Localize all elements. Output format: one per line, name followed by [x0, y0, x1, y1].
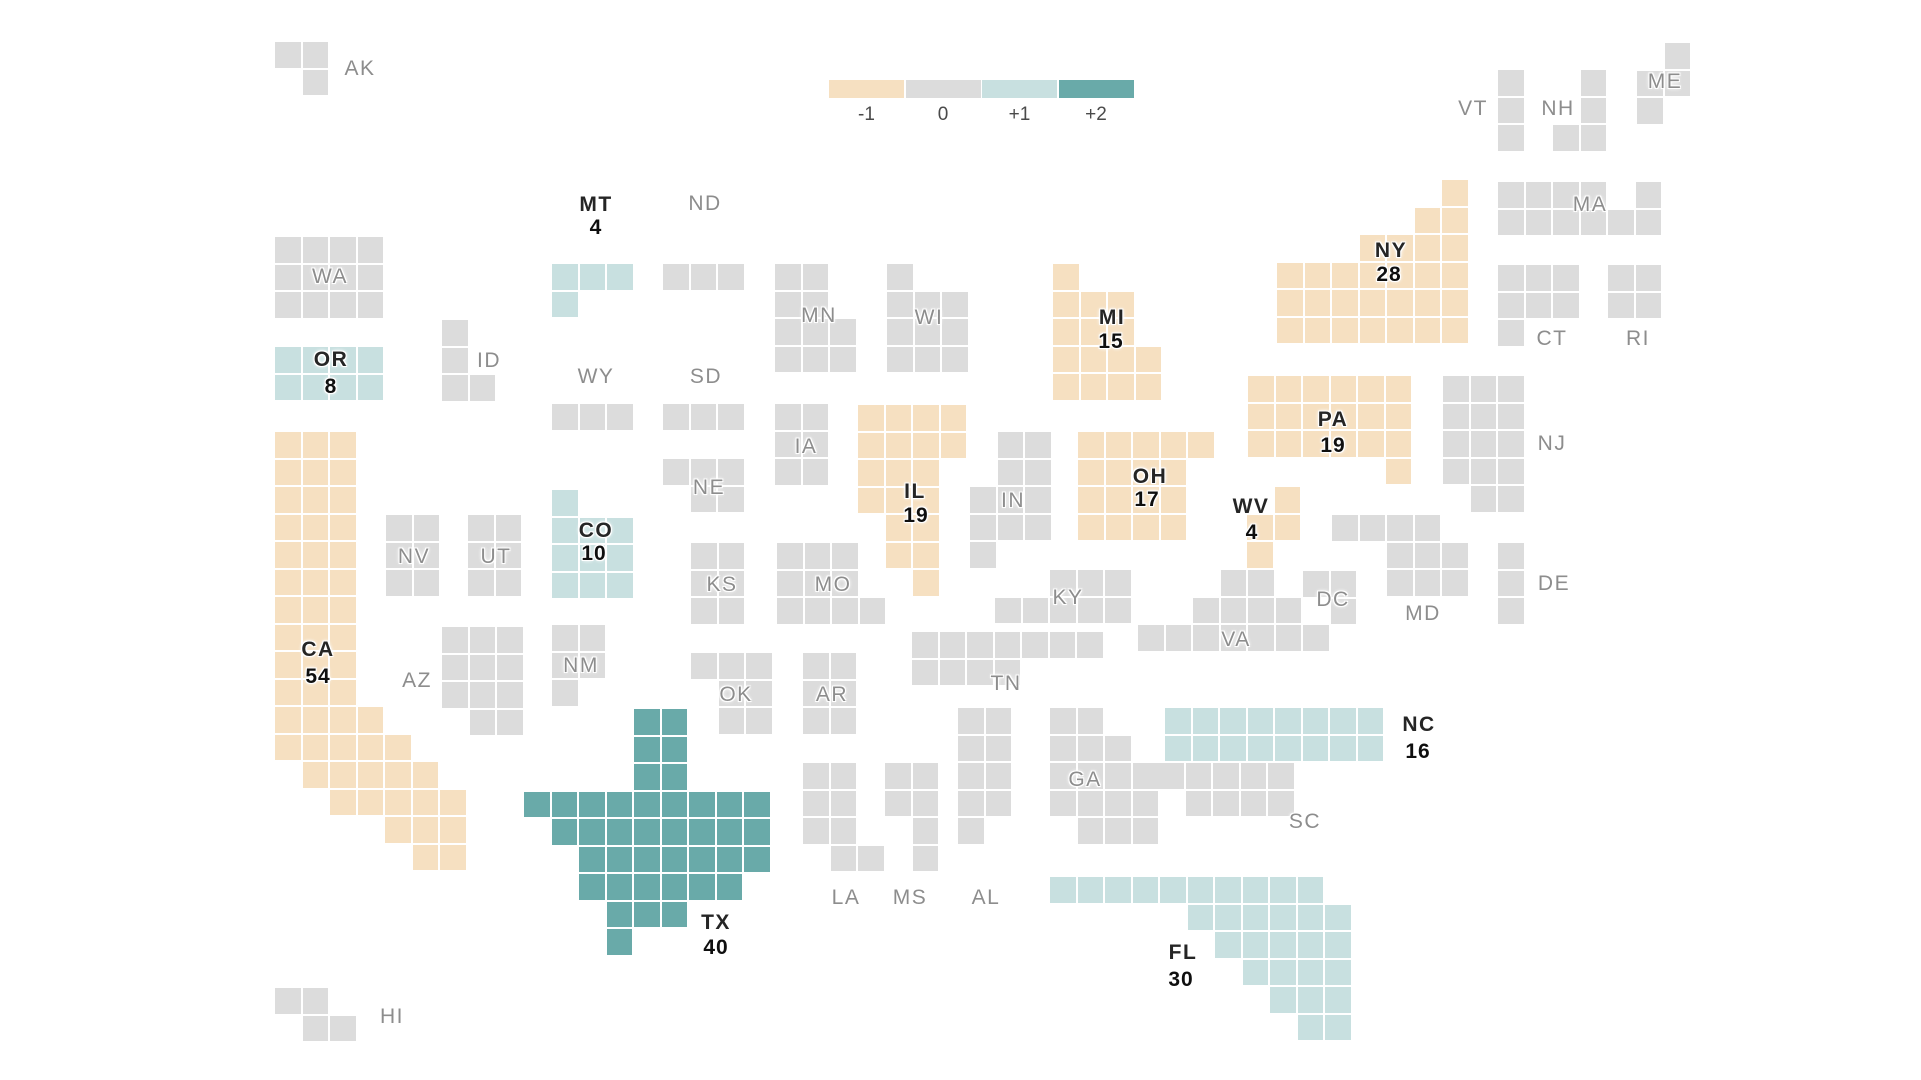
- tile-VA: [1248, 570, 1274, 596]
- tile-TX: [634, 847, 660, 873]
- label-NH: NH: [1541, 97, 1574, 121]
- tile-FL: [1325, 905, 1351, 931]
- label-MO: MO: [815, 573, 852, 597]
- tile-CT: [1553, 293, 1579, 319]
- legend-label--1: -1: [858, 104, 875, 126]
- tile-CA: [275, 707, 301, 733]
- tile-NE: [663, 459, 689, 485]
- tile-CT: [1526, 293, 1552, 319]
- tile-VA: [1221, 570, 1247, 596]
- tile-TX: [662, 847, 688, 873]
- tile-PA: [1386, 376, 1412, 402]
- tile-TX: [634, 764, 660, 790]
- tile-NY: [1360, 318, 1386, 344]
- tile-CA: [275, 432, 301, 458]
- tile-SC: [1213, 791, 1239, 817]
- tile-WI: [887, 264, 913, 290]
- tile-GA: [1105, 791, 1131, 817]
- tile-MI: [1081, 374, 1107, 400]
- tile-TX: [524, 792, 550, 818]
- tile-ND: [718, 264, 744, 290]
- tile-NC: [1330, 708, 1356, 734]
- tile-CA: [358, 735, 384, 761]
- tile-CA: [358, 790, 384, 816]
- tile-TX: [607, 847, 633, 873]
- tile-HI: [303, 988, 329, 1014]
- tile-CT: [1498, 293, 1524, 319]
- tile-MA: [1636, 210, 1662, 236]
- tile-HI: [275, 988, 301, 1014]
- legend-label-+1: +1: [1009, 104, 1031, 126]
- tile-CA: [275, 652, 301, 678]
- tile-MN: [775, 347, 801, 373]
- tile-OH: [1133, 432, 1159, 458]
- tile-KS: [691, 598, 717, 624]
- tile-FL: [1215, 932, 1241, 958]
- tile-DE: [1498, 571, 1524, 597]
- tile-SC: [1186, 791, 1212, 817]
- tile-TX: [662, 819, 688, 845]
- tile-ID: [442, 375, 468, 401]
- tile-NV: [414, 515, 440, 541]
- tile-MT: [580, 264, 606, 290]
- tile-TX: [634, 819, 660, 845]
- tile-OH: [1078, 515, 1104, 541]
- tile-IL: [941, 405, 967, 431]
- tile-IL: [886, 543, 912, 569]
- tile-CA: [330, 707, 356, 733]
- tile-VA: [1276, 598, 1302, 624]
- tile-WA: [275, 237, 301, 263]
- tile-WI: [887, 347, 913, 373]
- tile-WA: [358, 237, 384, 263]
- tile-TX: [744, 792, 770, 818]
- tile-CO: [580, 573, 606, 599]
- tile-MN: [830, 347, 856, 373]
- tile-MA: [1526, 182, 1552, 208]
- tile-GA: [1050, 791, 1076, 817]
- tile-FL: [1270, 932, 1296, 958]
- tile-NJ: [1443, 404, 1469, 430]
- tile-TX: [717, 874, 743, 900]
- tile-NC: [1248, 736, 1274, 762]
- label-CA: CA: [301, 638, 334, 662]
- label-AZ: AZ: [402, 669, 432, 693]
- tile-AZ: [470, 710, 496, 736]
- tile-VA: [1193, 625, 1219, 651]
- tile-NJ: [1443, 459, 1469, 485]
- tile-OH: [1161, 487, 1187, 513]
- tile-TN: [967, 632, 993, 658]
- tile-PA: [1331, 376, 1357, 402]
- tile-MD: [1442, 543, 1468, 569]
- value-WV: 4: [1246, 521, 1259, 545]
- tile-GA: [1105, 763, 1131, 789]
- tile-OK: [719, 708, 745, 734]
- tile-VA: [1248, 598, 1274, 624]
- tile-MS: [913, 763, 939, 789]
- tile-TN: [940, 632, 966, 658]
- tile-MN: [803, 347, 829, 373]
- tile-AL: [986, 763, 1012, 789]
- tile-NC: [1193, 736, 1219, 762]
- label-MT: MT: [579, 193, 612, 217]
- tile-VA: [1276, 625, 1302, 651]
- tile-LA: [858, 846, 884, 872]
- tile-CA: [330, 460, 356, 486]
- tile-KS: [719, 543, 745, 569]
- tile-SC: [1213, 763, 1239, 789]
- tile-LA: [803, 791, 829, 817]
- tile-SC: [1241, 763, 1267, 789]
- tile-OR: [275, 347, 301, 373]
- tile-OH: [1106, 515, 1132, 541]
- tile-MD: [1387, 515, 1413, 541]
- tile-PA: [1276, 404, 1302, 430]
- tile-IN: [970, 487, 996, 513]
- tile-FL: [1243, 932, 1269, 958]
- value-NY: 28: [1376, 263, 1401, 287]
- legend-label-0: 0: [938, 104, 949, 126]
- tile-KY: [1023, 598, 1049, 624]
- tile-NM: [552, 625, 578, 651]
- tile-IL: [886, 433, 912, 459]
- tile-VA: [1193, 598, 1219, 624]
- tile-CA: [275, 460, 301, 486]
- tile-PA: [1276, 376, 1302, 402]
- tile-ID: [442, 348, 468, 374]
- tile-WA: [330, 237, 356, 263]
- tile-MS: [913, 791, 939, 817]
- tile-FL: [1325, 1015, 1351, 1041]
- tile-GA: [1133, 818, 1159, 844]
- tile-FL: [1215, 905, 1241, 931]
- tile-WA: [303, 292, 329, 318]
- tile-MS: [913, 846, 939, 872]
- label-VA: VA: [1221, 628, 1250, 652]
- tile-OH: [1188, 432, 1214, 458]
- tile-TX: [689, 874, 715, 900]
- tile-NY: [1415, 263, 1441, 289]
- tile-CT: [1498, 320, 1524, 346]
- tile-CA: [358, 707, 384, 733]
- label-NM: NM: [563, 654, 599, 678]
- tile-OH: [1106, 487, 1132, 513]
- tile-MA: [1526, 210, 1552, 236]
- tile-TX: [579, 819, 605, 845]
- tile-IN: [970, 542, 996, 568]
- tile-WA: [275, 292, 301, 318]
- tile-MI: [1053, 292, 1079, 318]
- tile-AZ: [470, 627, 496, 653]
- tile-CA: [303, 460, 329, 486]
- label-KY: KY: [1052, 586, 1083, 610]
- tile-NY: [1387, 318, 1413, 344]
- label-AK: AK: [344, 57, 375, 81]
- tile-GA: [1078, 708, 1104, 734]
- tile-IL: [858, 433, 884, 459]
- label-SD: SD: [690, 365, 722, 389]
- tile-TX: [689, 847, 715, 873]
- tile-MI: [1053, 319, 1079, 345]
- tile-RI: [1608, 265, 1634, 291]
- tile-TX: [662, 764, 688, 790]
- tile-CA: [330, 487, 356, 513]
- tile-IA: [803, 404, 829, 430]
- tile-LA: [831, 818, 857, 844]
- tile-CA: [330, 597, 356, 623]
- tile-FL: [1270, 905, 1296, 931]
- tile-CA: [303, 707, 329, 733]
- tile-MA: [1498, 182, 1524, 208]
- tile-TX: [662, 709, 688, 735]
- label-KS: KS: [706, 573, 737, 597]
- tile-VA: [1248, 625, 1274, 651]
- tile-CA: [275, 487, 301, 513]
- tile-CT: [1498, 265, 1524, 291]
- tile-AZ: [497, 710, 523, 736]
- tile-CA: [440, 845, 466, 871]
- tile-NY: [1360, 290, 1386, 316]
- tile-IL: [858, 488, 884, 514]
- tile-AL: [958, 736, 984, 762]
- tile-MN: [775, 292, 801, 318]
- label-SC: SC: [1289, 810, 1321, 834]
- tile-LA: [803, 763, 829, 789]
- label-AL: AL: [972, 886, 1001, 910]
- label-MN: MN: [801, 304, 837, 328]
- tile-FL: [1298, 987, 1324, 1013]
- value-CO: 10: [581, 542, 606, 566]
- tile-CA: [275, 597, 301, 623]
- tile-MI: [1053, 347, 1079, 373]
- tile-AZ: [497, 655, 523, 681]
- tile-AZ: [497, 627, 523, 653]
- tile-HI: [330, 1016, 356, 1042]
- tile-MO: [777, 543, 803, 569]
- tile-NJ: [1471, 431, 1497, 457]
- tile-NC: [1248, 708, 1274, 734]
- tile-PA: [1303, 376, 1329, 402]
- tile-SC: [1268, 763, 1294, 789]
- label-PA: PA: [1318, 408, 1349, 432]
- tile-CA: [385, 762, 411, 788]
- tile-NJ: [1443, 376, 1469, 402]
- tile-CA: [275, 680, 301, 706]
- label-CO: CO: [579, 519, 614, 543]
- tile-MT: [607, 264, 633, 290]
- tile-NM: [580, 625, 606, 651]
- tile-NC: [1165, 736, 1191, 762]
- tile-NC: [1275, 736, 1301, 762]
- tile-OK: [746, 708, 772, 734]
- tile-MA: [1498, 210, 1524, 236]
- tile-NY: [1277, 263, 1303, 289]
- label-NC: NC: [1402, 713, 1435, 737]
- tile-WV: [1275, 487, 1301, 513]
- tile-WI: [942, 319, 968, 345]
- label-UT: UT: [481, 545, 512, 569]
- tile-TX: [744, 819, 770, 845]
- tile-FL: [1215, 877, 1241, 903]
- tile-AZ: [497, 682, 523, 708]
- value-MI: 15: [1098, 330, 1123, 354]
- tile-TX: [607, 792, 633, 818]
- tile-OH: [1106, 432, 1132, 458]
- tile-GA: [1078, 791, 1104, 817]
- tile-MS: [885, 763, 911, 789]
- tile-IA: [775, 459, 801, 485]
- tile-WV: [1275, 515, 1301, 541]
- tile-NH: [1581, 98, 1607, 124]
- tile-PA: [1386, 404, 1412, 430]
- value-OR: 8: [325, 375, 338, 399]
- tile-WA: [303, 237, 329, 263]
- tile-TX: [689, 819, 715, 845]
- tile-NJ: [1498, 404, 1524, 430]
- tile-NV: [386, 515, 412, 541]
- tile-FL: [1270, 877, 1296, 903]
- tile-NY: [1277, 318, 1303, 344]
- tile-NC: [1220, 708, 1246, 734]
- label-LA: LA: [832, 886, 861, 910]
- tile-CA: [303, 762, 329, 788]
- tile-IN: [1025, 487, 1051, 513]
- tile-SD: [718, 404, 744, 430]
- tile-CO: [552, 573, 578, 599]
- label-TN: TN: [991, 672, 1022, 696]
- tile-CA: [440, 817, 466, 843]
- label-RI: RI: [1626, 327, 1650, 351]
- tile-GA: [1133, 791, 1159, 817]
- tile-TX: [552, 792, 578, 818]
- tile-WY: [580, 404, 606, 430]
- tile-NJ: [1471, 404, 1497, 430]
- label-MS: MS: [893, 886, 928, 910]
- tile-TX: [662, 792, 688, 818]
- tile-MO: [805, 598, 831, 624]
- label-WA: WA: [312, 265, 348, 289]
- label-WY: WY: [578, 365, 615, 389]
- label-NY: NY: [1375, 239, 1407, 263]
- tile-TX: [607, 929, 633, 955]
- tile-DE: [1498, 598, 1524, 624]
- tile-GA: [1078, 818, 1104, 844]
- tile-CA: [330, 542, 356, 568]
- tile-MD: [1387, 543, 1413, 569]
- tile-IN: [998, 515, 1024, 541]
- tile-NJ: [1471, 486, 1497, 512]
- tile-UT: [496, 570, 522, 596]
- tile-CA: [330, 680, 356, 706]
- tile-NC: [1303, 708, 1329, 734]
- tile-LA: [803, 818, 829, 844]
- tile-MI: [1108, 374, 1134, 400]
- tile-TX: [717, 819, 743, 845]
- tile-OK: [691, 653, 717, 679]
- value-TX: 40: [703, 936, 728, 960]
- tile-WI: [915, 347, 941, 373]
- tile-CT: [1526, 265, 1552, 291]
- tile-NM: [552, 680, 578, 706]
- tile-MA: [1608, 210, 1634, 236]
- tile-ME: [1637, 98, 1663, 124]
- tile-VA: [1138, 625, 1164, 651]
- tile-MO: [860, 598, 886, 624]
- tile-OH: [1133, 515, 1159, 541]
- tile-OH: [1106, 460, 1132, 486]
- tile-RI: [1636, 293, 1662, 319]
- tile-NC: [1330, 736, 1356, 762]
- tile-CA: [385, 735, 411, 761]
- tile-MS: [885, 791, 911, 817]
- tile-AK: [275, 42, 301, 68]
- tile-OH: [1161, 432, 1187, 458]
- tile-GA: [1133, 763, 1159, 789]
- tile-VA: [1221, 598, 1247, 624]
- tile-TN: [995, 632, 1021, 658]
- tile-IL: [913, 433, 939, 459]
- tile-IN: [970, 515, 996, 541]
- legend-swatch--1: [829, 80, 904, 98]
- tile-CA: [385, 817, 411, 843]
- tile-WA: [275, 265, 301, 291]
- tile-FL: [1078, 877, 1104, 903]
- tile-GA: [1050, 708, 1076, 734]
- tile-WV: [1247, 542, 1273, 568]
- tile-TX: [634, 874, 660, 900]
- tile-AR: [803, 708, 829, 734]
- tile-OR: [275, 375, 301, 401]
- tile-IA: [775, 404, 801, 430]
- tile-NV: [414, 570, 440, 596]
- tile-MD: [1442, 570, 1468, 596]
- tile-FL: [1298, 1015, 1324, 1041]
- tile-IL: [941, 433, 967, 459]
- tile-TX: [607, 819, 633, 845]
- tile-NC: [1358, 708, 1384, 734]
- tile-NC: [1358, 736, 1384, 762]
- tile-WY: [552, 404, 578, 430]
- tile-TX: [717, 792, 743, 818]
- tile-FL: [1298, 905, 1324, 931]
- tile-CA: [303, 487, 329, 513]
- tile-NC: [1275, 708, 1301, 734]
- tile-IL: [858, 460, 884, 486]
- tile-IN: [998, 432, 1024, 458]
- tile-AZ: [442, 682, 468, 708]
- tile-NY: [1305, 318, 1331, 344]
- tile-NJ: [1471, 376, 1497, 402]
- tile-WA: [358, 292, 384, 318]
- tile-NY: [1442, 235, 1468, 261]
- tile-NH: [1553, 125, 1579, 151]
- tile-LA: [831, 763, 857, 789]
- value-CA: 54: [305, 665, 330, 689]
- tile-TN: [912, 632, 938, 658]
- tile-NY: [1305, 263, 1331, 289]
- tile-AR: [803, 653, 829, 679]
- tile-CA: [440, 790, 466, 816]
- tile-FL: [1105, 877, 1131, 903]
- tile-SC: [1241, 791, 1267, 817]
- tile-MT: [552, 292, 578, 318]
- tile-GA: [1078, 736, 1104, 762]
- tile-FL: [1298, 960, 1324, 986]
- tile-AZ: [442, 627, 468, 653]
- label-IL: IL: [904, 480, 926, 504]
- tile-CA: [275, 625, 301, 651]
